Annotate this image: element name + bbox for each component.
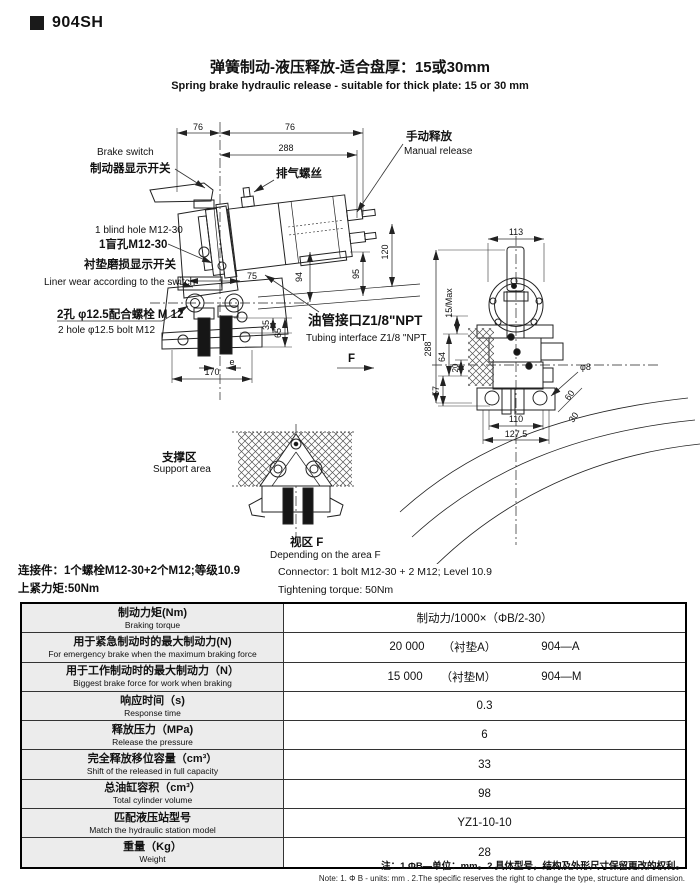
bolt-label-en: 2 hole φ12.5 bolt M12 (58, 325, 156, 336)
footnote-zh: 注：1.ΦB—单位：mm。2.具体型号，结构及外形尺寸保留更改的权利。 (319, 861, 685, 873)
spec-row-label: 释放压力（MPa) Release the pressure (22, 720, 283, 749)
datasheet-page: 904SH 弹簧制动-液压释放-适合盘厚：15或30mm Spring brak… (0, 0, 700, 892)
liner-wear-label-en: Liner wear according to the switch (44, 277, 195, 288)
spec-row-value: 制动力/1000×（ΦB/2-30） (283, 604, 685, 632)
support-area-label-zh: 支撑区 (161, 450, 197, 464)
bullet-square-icon (30, 16, 44, 30)
dim-15max: 15/Max (444, 288, 454, 318)
brake-switch-label-en: Brake switch (97, 147, 154, 158)
view-f-label-en: Depending on the area F (270, 550, 381, 561)
dim-288: 288 (278, 143, 293, 153)
dim-120: 120 (380, 244, 390, 259)
support-area-detail (232, 424, 356, 548)
spec-row-label: 用于工作制动时的最大制动力（N） Biggest brake force for… (22, 662, 283, 691)
spec-row-value: 15 000 （衬垫M） 904—M (283, 662, 685, 691)
drawing-labels: Brake switch 制动器显示开关 排气螺丝 手动释放 Manual re… (44, 129, 473, 561)
dim-phi8: φ8 (580, 362, 591, 372)
view-f-label-zh: 视区 F (290, 535, 323, 549)
dim-65: 65 (273, 328, 283, 338)
footnote-en: Note: 1. Φ B - units: mm . 2.The specifi… (319, 873, 685, 884)
dim-35: 35 (261, 320, 271, 330)
title-en: Spring brake hydraulic release - suitabl… (0, 80, 700, 92)
dim-30: 30 (567, 410, 581, 424)
dim-110: 110 (509, 414, 523, 424)
dim-20: 20 (451, 363, 460, 372)
dim-170: 170 (204, 367, 219, 377)
technical-drawing: Brake switch 制动器显示开关 排气螺丝 手动释放 Manual re… (0, 112, 700, 564)
view-f-arrow-label: F (348, 353, 355, 365)
title-block: 弹簧制动-液压释放-适合盘厚：15或30mm Spring brake hydr… (0, 56, 700, 92)
brake-switch-label-zh: 制动器显示开关 (90, 161, 171, 175)
connector-en-line1: Connector: 1 bolt M12-30 + 2 M12; Level … (278, 563, 492, 581)
manual-release-label-zh: 手动释放 (406, 129, 452, 143)
spec-row-label: 总油缸容积（cm³） Total cylinder volume (22, 779, 283, 808)
footnotes: 注：1.ΦB—单位：mm。2.具体型号，结构及外形尺寸保留更改的权利。 Note… (319, 861, 685, 884)
spec-table: 制动力矩(Nm) Braking torque 制动力/1000×（ΦB/2-3… (20, 602, 687, 869)
dim-113: 113 (509, 227, 523, 237)
spec-row-label: 完全释放移位容量（cm³） Shift of the released in f… (22, 749, 283, 778)
manual-release-label-en: Manual release (404, 146, 473, 157)
liner-wear-label-zh: 衬垫磨损显示开关 (84, 257, 176, 271)
connector-en-line2: Tightening torque: 50Nm (278, 581, 492, 599)
spec-row-label: 响应时间（s) Response time (22, 691, 283, 720)
tubing-label-zh: 油管接口Z1/8"NPT (308, 312, 423, 328)
spec-row-label: 制动力矩(Nm) Braking torque (22, 604, 283, 632)
dim-76-left: 76 (193, 122, 203, 132)
dim-288-right: 288 (423, 341, 433, 356)
blind-hole-label-zh: 1盲孔M12-30 (99, 237, 167, 251)
spec-row-value: 0.3 (283, 691, 685, 720)
dim-95: 95 (351, 269, 361, 279)
dim-127-5: 127.5 (505, 429, 528, 439)
blind-hole-label-en: 1 blind hole M12-30 (95, 225, 183, 236)
dim-e: e (229, 357, 234, 367)
spec-row-value: 20 000 （衬垫A） 904—A (283, 632, 685, 661)
tubing-label-en: Tubing interface Z1/8 "NPT (306, 333, 426, 344)
spec-row-label: 匹配液压站型号 Match the hydraulic station mode… (22, 808, 283, 837)
title-zh: 弹簧制动-液压释放-适合盘厚：15或30mm (0, 56, 700, 77)
page-header: 904SH (30, 14, 103, 32)
exhaust-screw-label: 排气螺丝 (276, 166, 322, 180)
spec-row-label: 重量（Kg） Weight (22, 837, 283, 866)
dim-57: 57 (431, 386, 441, 396)
spec-row-value: 6 (283, 720, 685, 749)
support-area-label-en: Support area (153, 464, 211, 475)
spec-row-value: 33 (283, 749, 685, 778)
model-number: 904SH (52, 14, 103, 32)
spec-row-value: 98 (283, 779, 685, 808)
connector-zh-line2: 上紧力矩:50Nm (18, 580, 240, 598)
connector-zh-line1: 连接件：1个螺栓M12-30+2个M12;等级10.9 (18, 562, 240, 580)
spec-row-label: 用于紧急制动时的最大制动力(N) For emergency brake whe… (22, 632, 283, 661)
dim-60: 60 (563, 388, 577, 402)
dim-75: 75 (247, 271, 257, 281)
dim-76-right: 76 (285, 122, 295, 132)
left-view (150, 122, 420, 400)
dim-94: 94 (294, 272, 304, 282)
bolt-label-zh: 2孔 φ12.5配合螺栓 M 12 (57, 307, 183, 321)
dim-64: 64 (437, 352, 447, 362)
right-view (400, 236, 700, 564)
spec-row-value: YZ1-10-10 (283, 808, 685, 837)
